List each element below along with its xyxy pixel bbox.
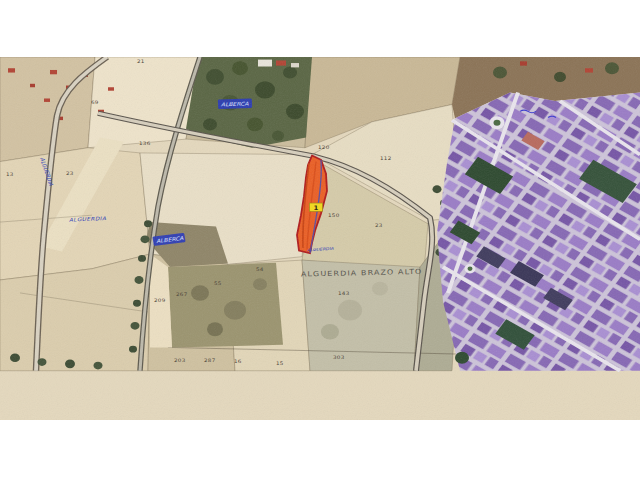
cadastral-map-canvas: 1 ALBERCA ALBERCA ALGUERDIA ALGUERDIA AL…: [0, 57, 640, 420]
aerial-photo: 1 ALBERCA ALBERCA ALGUERDIA ALGUERDIA AL…: [0, 57, 640, 420]
top-white-margin: [0, 0, 640, 57]
photo-grain-overlay: [0, 57, 640, 420]
bottom-white-margin: [0, 420, 640, 480]
